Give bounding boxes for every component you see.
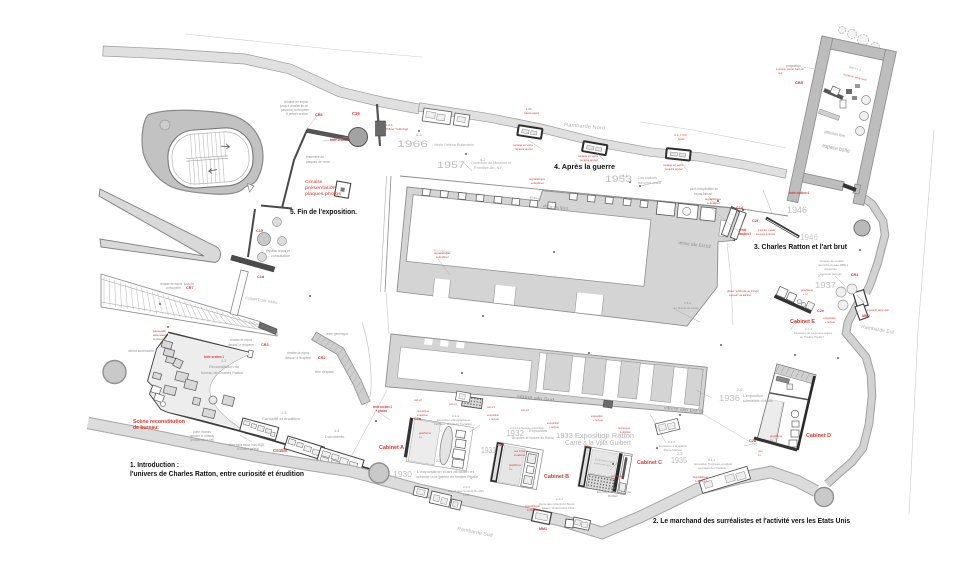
svg-text:à décliner: à décliner (620, 430, 631, 434)
svg-text:+ lecture: + lecture (593, 418, 603, 422)
svg-text:CR2: CR2 (318, 356, 326, 360)
svg-text:expos Almost: expos Almost (694, 192, 712, 196)
svg-text:Cabinet B: Cabinet B (544, 474, 569, 480)
svg-text:(condamnée à clef): (condamnée à clef) (190, 438, 214, 442)
svg-text:1. Introduction :: 1. Introduction : (130, 460, 179, 469)
svg-text:Pillow Télévingt: Pillow Télévingt (386, 127, 408, 131)
svg-text:à décliner: à décliner (436, 255, 449, 259)
svg-text:libre d'espace: libre d'espace (315, 370, 334, 374)
svg-text:5-1: 5-1 (792, 199, 798, 203)
svg-text:consultation: consultation (271, 254, 290, 258)
svg-text:à prévoir série web: à prévoir série web (867, 309, 890, 312)
svg-text:2-6: 2-6 (737, 388, 743, 392)
svg-text:t.v.: t.v. (758, 453, 762, 457)
svg-text:t.v.: t.v. (611, 478, 615, 482)
svg-text:2-5: 2-5 (677, 452, 683, 456)
svg-text:: Vente Helena Rubinstein: : Vente Helena Rubinstein (432, 142, 474, 147)
svg-text:cart.v3: cart.v3 (487, 405, 495, 409)
svg-text:Le Monde au Congo: Le Monde au Congo (674, 306, 699, 310)
svg-text:C2d: C2d (749, 439, 757, 443)
svg-text:1957: 1957 (437, 160, 465, 170)
svg-text:Cabinet A: Cabinet A (379, 445, 404, 451)
svg-text:MM1: MM1 (539, 527, 547, 531)
svg-text:2. Le marchand des surréaliste: 2. Le marchand des surréalistes et l'act… (653, 516, 850, 525)
svg-text:Reconstitution du: Reconstitution du (209, 365, 239, 369)
svg-text:4-2: 4-2 (480, 158, 486, 162)
svg-text:: L'exposition d'art africain: : L'exposition d'art africain et (414, 470, 474, 474)
svg-text:ensemble de: ensemble de (306, 155, 324, 159)
svg-text:C16: C16 (352, 111, 360, 116)
svg-text:t.v.: t.v. (770, 438, 774, 442)
svg-text:à décliner: à décliner (707, 201, 720, 205)
svg-text:plaques de verre: plaques de verre (306, 160, 330, 164)
svg-text:à confier galerie: à confier galerie (237, 447, 259, 451)
svg-text:exposé? au cabinet: exposé? au cabinet (729, 293, 751, 297)
svg-text:t.v.: t.v. (419, 435, 423, 439)
svg-text:C2b: C2b (497, 443, 505, 447)
svg-text:+exposition: +exposition (823, 316, 837, 320)
svg-text:cart.v4: cart.v4 (521, 408, 529, 412)
svg-text:océanien à la galerie du théât: océanien à la galerie du théâtre Pigalle (416, 475, 478, 479)
svg-text:2-1: 2-1 (436, 459, 441, 463)
svg-text:Cabinet E: Cabinet E (790, 319, 816, 325)
svg-text:4. Après la guerre: 4. Après la guerre (554, 162, 615, 171)
svg-text:+ lecture: + lecture (825, 320, 836, 324)
svg-text:l'univers de Charles Ratton, e: l'univers de Charles Ratton, entre curio… (130, 469, 304, 478)
svg-text:C2e: C2e (817, 309, 824, 313)
svg-text:sauvages de l'Océanie: sauvages de l'Océanie (698, 466, 726, 470)
svg-text:1930: 1930 (393, 470, 413, 479)
svg-text:CR3: CR3 (261, 343, 269, 347)
svg-text:Bronzes et ivoires du Bénin: Bronzes et ivoires du Bénin (512, 436, 554, 440)
svg-text:t.v.: t.v. (509, 467, 513, 471)
svg-text:5. Fin de l'exposition.: 5. Fin de l'exposition. (290, 207, 357, 216)
svg-text:CS15ht: CS15ht (273, 448, 288, 453)
svg-text:de bureau:: de bureau: (133, 425, 159, 431)
svg-text:annexes le phono: annexes le phono (756, 232, 776, 236)
svg-text:texte section 1: texte section 1 (204, 355, 224, 359)
svg-text:1966: 1966 (397, 139, 428, 149)
svg-text:recadré ancien: recadré ancien (665, 167, 683, 171)
svg-text:MM2: MM2 (862, 314, 870, 318)
svg-text:1935: 1935 (671, 456, 688, 465)
svg-text:1-4: 1-4 (334, 429, 340, 433)
svg-text:1946: 1946 (800, 233, 819, 242)
svg-text:1937: 1937 (815, 281, 836, 290)
svg-text:au Théâtre Pigalle?: au Théâtre Pigalle? (800, 335, 824, 339)
svg-text:1-2: 1-2 (221, 359, 227, 363)
svg-text:CB5: CB5 (795, 80, 804, 85)
svg-text:texte générique: texte générique (326, 332, 348, 336)
svg-text:C1d: C1d (257, 275, 265, 279)
svg-text:Cimaise: Cimaise (305, 179, 323, 185)
svg-text:plaques photos: plaques photos (305, 191, 342, 197)
svg-text:présentation: présentation (305, 185, 336, 191)
svg-text:silo: silo (551, 275, 557, 280)
svg-text:Primitive Art, NY: Primitive Art, NY (474, 165, 502, 170)
svg-text:1-3: 1-3 (281, 411, 287, 415)
svg-text:bureau de Charles Ratton: bureau de Charles Ratton (201, 371, 243, 375)
svg-text:C2f: C2f (752, 219, 759, 223)
svg-text:CR4: CR4 (851, 273, 858, 277)
svg-text:Documents.: Documents. (325, 435, 345, 439)
svg-text:4-3: 4-3 (416, 133, 422, 137)
svg-text:C15: C15 (256, 229, 263, 233)
svg-text:+ lecture: + lecture (549, 425, 559, 429)
svg-text:Pierre Matisse: Pierre Matisse (664, 448, 682, 452)
svg-text:section 3: section 3 (739, 232, 751, 236)
svg-text:1931: 1931 (463, 493, 470, 497)
svg-text:Curiosité et érudition: Curiosité et érudition (262, 417, 300, 421)
svg-text:cart.v2: cart.v2 (414, 398, 422, 402)
svg-text:française, révolte du Trocadér: française, révolte du Trocadéro (434, 422, 472, 426)
svg-text:texte section 5: texte section 5 (330, 138, 350, 142)
svg-text:4-1: 4-1 (622, 174, 628, 178)
svg-text:Eluard, 19 décembre 1931: Eluard, 19 décembre 1931 (542, 506, 574, 510)
svg-text:texte section 4: texte section 4 (789, 191, 809, 195)
svg-text:2-3-4: 2-3-4 (556, 497, 563, 501)
svg-text:+ tv: + tv (803, 292, 808, 296)
svg-text:cimaise de expos: cimaise de expos (287, 351, 309, 355)
svg-text:CR7: CR7 (186, 286, 194, 290)
svg-text:2-2-b La Genèse exposition: 2-2-b La Genèse exposition (510, 426, 544, 430)
svg-text:à prévoir percer dans un: à prévoir percer dans un (776, 67, 805, 71)
svg-text:À prévoir section: À prévoir section (286, 112, 308, 116)
svg-text:CR6: CR6 (315, 113, 323, 117)
svg-text:cimaise de expos: cimaise de expos (230, 338, 252, 342)
svg-text:surréaliste d'objets: surréaliste d'objets (743, 398, 773, 403)
svg-text:meurent aussi: meurent aussi (638, 180, 661, 185)
svg-text:à prévoir: à prévoir (153, 337, 165, 341)
svg-text:1953: 1953 (605, 174, 632, 184)
svg-text:récupérée: récupérée (824, 267, 837, 271)
svg-text:à décliner: à décliner (695, 479, 707, 483)
svg-text:Cabinet C: Cabinet C (637, 460, 662, 466)
svg-text:cart.v2: cart.v2 (449, 402, 457, 406)
svg-text:recadré ancien: recadré ancien (515, 147, 533, 151)
svg-text:dessus? à récupérer: dessus? à récupérer (228, 343, 255, 347)
svg-text:Carré à la Villa Guibert: Carré à la Villa Guibert (565, 438, 631, 447)
svg-text:à décliner: à décliner (417, 413, 428, 417)
svg-text:espace repos et: espace repos et (266, 249, 291, 253)
svg-text:boîte: boîte (678, 137, 685, 141)
svg-text:1936: 1936 (719, 394, 740, 403)
svg-text:C2a: C2a (414, 417, 422, 421)
svg-text:recadré ancien: recadré ancien (580, 158, 598, 162)
svg-text:1946: 1946 (787, 205, 807, 215)
svg-text:À prévoir peinture: À prévoir peinture (820, 272, 842, 276)
svg-text:vitrine accessoire: vitrine accessoire (128, 349, 154, 353)
svg-text:à décliner: à décliner (531, 181, 544, 185)
svg-text:+ photos: + photos (376, 409, 387, 413)
svg-text:2-5-2: 2-5-2 (684, 301, 691, 305)
svg-text:+ lecture: + lecture (489, 417, 499, 421)
svg-text:haute époq: haute époq (524, 111, 539, 115)
svg-text:glisser 'le Monde au Congo': glisser 'le Monde au Congo' (727, 289, 759, 293)
svg-text:3. Charles Ratton et l'art bru: 3. Charles Ratton et l'art brut (754, 242, 847, 251)
svg-text:pach récupération de: pach récupération de (690, 187, 718, 191)
svg-text:mur: mur (778, 71, 783, 75)
svg-text:à décliner: à décliner (527, 508, 539, 512)
svg-text:à récupérer: à récupérer (166, 286, 182, 290)
svg-text:C14: C14 (736, 206, 744, 210)
svg-text:2 ancien musée: 2 ancien musée (758, 228, 776, 232)
svg-text:à cabinet: à cabinet (514, 453, 525, 457)
svg-text:dessus? à récupérer: dessus? à récupérer (285, 356, 312, 360)
svg-text:C2c: C2c (584, 445, 591, 449)
svg-text:Cabinet D: Cabinet D (806, 433, 831, 439)
svg-text:1931: 1931 (481, 446, 496, 455)
svg-text:BCBEK: BCBEK (608, 494, 618, 498)
